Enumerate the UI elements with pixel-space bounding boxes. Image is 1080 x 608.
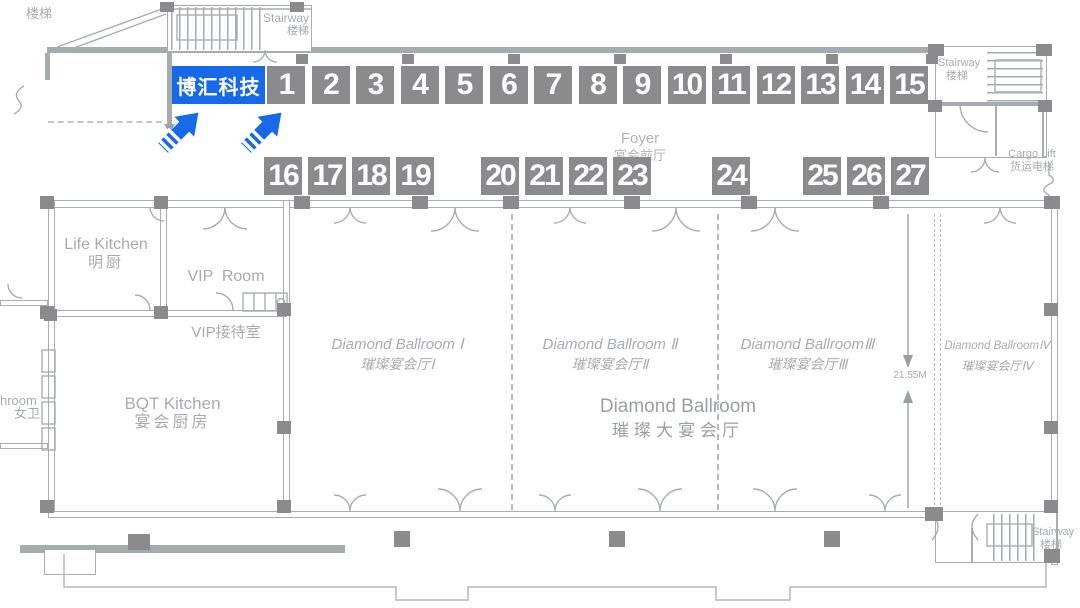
wall bbox=[45, 53, 50, 80]
ballroom-2-zh: 璀璨宴会厅Ⅱ bbox=[505, 358, 715, 375]
stairway-zh: 楼梯 bbox=[938, 70, 980, 83]
column bbox=[296, 54, 308, 64]
column bbox=[44, 309, 57, 321]
column bbox=[1044, 500, 1058, 513]
ballroom-2-en: Diamond Ballroom Ⅱ bbox=[505, 336, 715, 354]
booth-6: 6 bbox=[490, 66, 528, 104]
arrow-icon bbox=[153, 103, 208, 158]
booth-15: 15 bbox=[890, 66, 928, 104]
booth-20: 20 bbox=[481, 157, 519, 195]
vip-room-label: VIP Room VIP接待室 bbox=[170, 230, 282, 380]
booth-8: 8 bbox=[579, 66, 617, 104]
ballroom-3-label: Diamond BallroomⅢ 璀璨宴会厅Ⅲ bbox=[710, 336, 905, 374]
column bbox=[928, 100, 942, 112]
booth-24: 24 bbox=[712, 157, 750, 195]
ballroom-main-label: Diamond Ballroom 璀璨大宴会厅 bbox=[528, 396, 828, 441]
ballroom-main-zh: 璀璨大宴会厅 bbox=[528, 421, 828, 441]
cargo-lift-label: Cargo Lift 货运电梯 bbox=[1002, 148, 1062, 174]
ballroom-3-zh: 璀璨宴会厅Ⅲ bbox=[710, 358, 905, 375]
booth-18: 18 bbox=[352, 157, 390, 195]
column bbox=[160, 2, 174, 12]
booth-14: 14 bbox=[846, 66, 884, 104]
column bbox=[614, 54, 626, 64]
booth-1: 1 bbox=[267, 66, 305, 104]
column bbox=[154, 196, 168, 209]
stairway-en: Stairway bbox=[1032, 526, 1074, 539]
life-kitchen-en: Life Kitchen bbox=[50, 236, 162, 255]
ballroom-3-en: Diamond BallroomⅢ bbox=[710, 336, 905, 354]
stair-treads bbox=[993, 514, 1035, 561]
booth-4: 4 bbox=[401, 66, 439, 104]
column bbox=[1038, 100, 1052, 112]
dimension-label: 21.55M bbox=[884, 370, 936, 382]
column bbox=[394, 531, 410, 547]
bqt-kitchen-label: BQT Kitchen 宴会厨房 bbox=[100, 394, 245, 433]
life-kitchen-label: Life Kitchen 明厨 bbox=[50, 236, 162, 273]
wall bbox=[287, 200, 1057, 208]
column bbox=[294, 196, 310, 209]
booth-10: 10 bbox=[668, 66, 706, 104]
column bbox=[412, 196, 428, 209]
column bbox=[40, 500, 54, 513]
ballroom-1-label: Diamond Ballroom Ⅰ 璀璨宴会厅Ⅰ bbox=[290, 336, 505, 374]
booth-17: 17 bbox=[308, 157, 346, 195]
booth-2: 2 bbox=[312, 66, 350, 104]
booth-5: 5 bbox=[445, 66, 483, 104]
stairway-en: Stairway bbox=[938, 57, 980, 70]
dashed-line bbox=[48, 121, 162, 123]
column bbox=[154, 306, 168, 319]
column bbox=[926, 54, 938, 64]
stairway-top-label: Stairway 楼梯 bbox=[233, 11, 309, 38]
ballroom-1-en: Diamond Ballroom Ⅰ bbox=[290, 336, 505, 354]
column bbox=[503, 196, 519, 209]
column bbox=[508, 54, 520, 64]
bqt-kitchen-zh: 宴会厨房 bbox=[100, 414, 245, 433]
stairway-top-right-label: Stairway 楼梯 bbox=[938, 57, 980, 83]
planter bbox=[44, 549, 96, 575]
cargo-lift-en: Cargo Lift bbox=[1002, 148, 1062, 161]
ballroom-4-label: Diamond BallroomⅣ 璀璨宴会厅Ⅳ bbox=[941, 340, 1053, 373]
column bbox=[925, 507, 943, 521]
column bbox=[609, 531, 625, 547]
cargo-lift-zh: 货运电梯 bbox=[1002, 161, 1062, 174]
foyer-en: Foyer bbox=[595, 130, 685, 148]
column bbox=[1036, 44, 1052, 56]
wall bbox=[935, 102, 1047, 106]
column bbox=[128, 534, 150, 550]
column bbox=[1044, 549, 1060, 563]
wall bbox=[48, 511, 1057, 518]
booth-22: 22 bbox=[569, 157, 607, 195]
wall bbox=[971, 528, 973, 563]
column bbox=[824, 531, 840, 547]
column bbox=[873, 196, 889, 209]
wall bbox=[995, 106, 997, 156]
column bbox=[1044, 421, 1058, 434]
bqt-kitchen-en: BQT Kitchen bbox=[100, 394, 245, 414]
column bbox=[277, 303, 291, 316]
column bbox=[40, 196, 54, 209]
wall-end bbox=[164, 124, 175, 133]
booth-21: 21 bbox=[525, 157, 563, 195]
column bbox=[402, 54, 414, 64]
booth-11: 11 bbox=[712, 66, 750, 104]
stairs-top-left-label: 楼梯 bbox=[26, 6, 52, 21]
booth-9: 9 bbox=[623, 66, 661, 104]
column bbox=[290, 2, 304, 12]
booth-23: 23 bbox=[613, 157, 651, 195]
stairway-en: Stairway bbox=[233, 11, 309, 25]
column bbox=[624, 196, 640, 209]
stairway-zh: 楼梯 bbox=[233, 25, 309, 38]
booth-13: 13 bbox=[801, 66, 839, 104]
column bbox=[741, 196, 757, 209]
ballroom-4-en: Diamond BallroomⅣ bbox=[941, 340, 1053, 354]
wall bbox=[0, 443, 48, 449]
vip-room-en: VIP Room bbox=[170, 268, 282, 287]
booth-7: 7 bbox=[534, 66, 572, 104]
column bbox=[1044, 303, 1058, 316]
booth-26: 26 bbox=[847, 157, 885, 195]
column bbox=[1044, 196, 1060, 209]
column bbox=[277, 421, 291, 434]
partition-dashed-double bbox=[934, 214, 941, 510]
ballroom-1-zh: 璀璨宴会厅Ⅰ bbox=[290, 358, 505, 375]
highlight-company-label: 博汇科技 bbox=[172, 66, 265, 104]
floor-plan: Stairway 楼梯 楼梯 Stairway 楼梯 Cargo Lift 货运… bbox=[0, 0, 1080, 608]
column bbox=[277, 500, 291, 513]
column bbox=[826, 54, 838, 64]
stair-treads bbox=[987, 52, 1043, 102]
arrow-icon bbox=[236, 103, 291, 158]
life-kitchen-zh: 明厨 bbox=[50, 255, 162, 273]
column bbox=[720, 54, 732, 64]
ballroom-2-label: Diamond Ballroom Ⅱ 璀璨宴会厅Ⅱ bbox=[505, 336, 715, 374]
booth-25: 25 bbox=[803, 157, 841, 195]
vip-room-zh: VIP接待室 bbox=[170, 324, 282, 342]
ballroom-main-en: Diamond Ballroom bbox=[528, 396, 828, 418]
bathroom-label-zh: 女卫 bbox=[14, 406, 40, 421]
ballroom-4-zh: 璀璨宴会厅Ⅳ bbox=[941, 359, 1053, 373]
booth-12: 12 bbox=[757, 66, 795, 104]
wall bbox=[283, 200, 290, 516]
booth-19: 19 bbox=[396, 157, 434, 195]
booth-27: 27 bbox=[891, 157, 929, 195]
booth-3: 3 bbox=[356, 66, 394, 104]
terrace-outline bbox=[64, 554, 1046, 600]
booth-16: 16 bbox=[264, 157, 302, 195]
